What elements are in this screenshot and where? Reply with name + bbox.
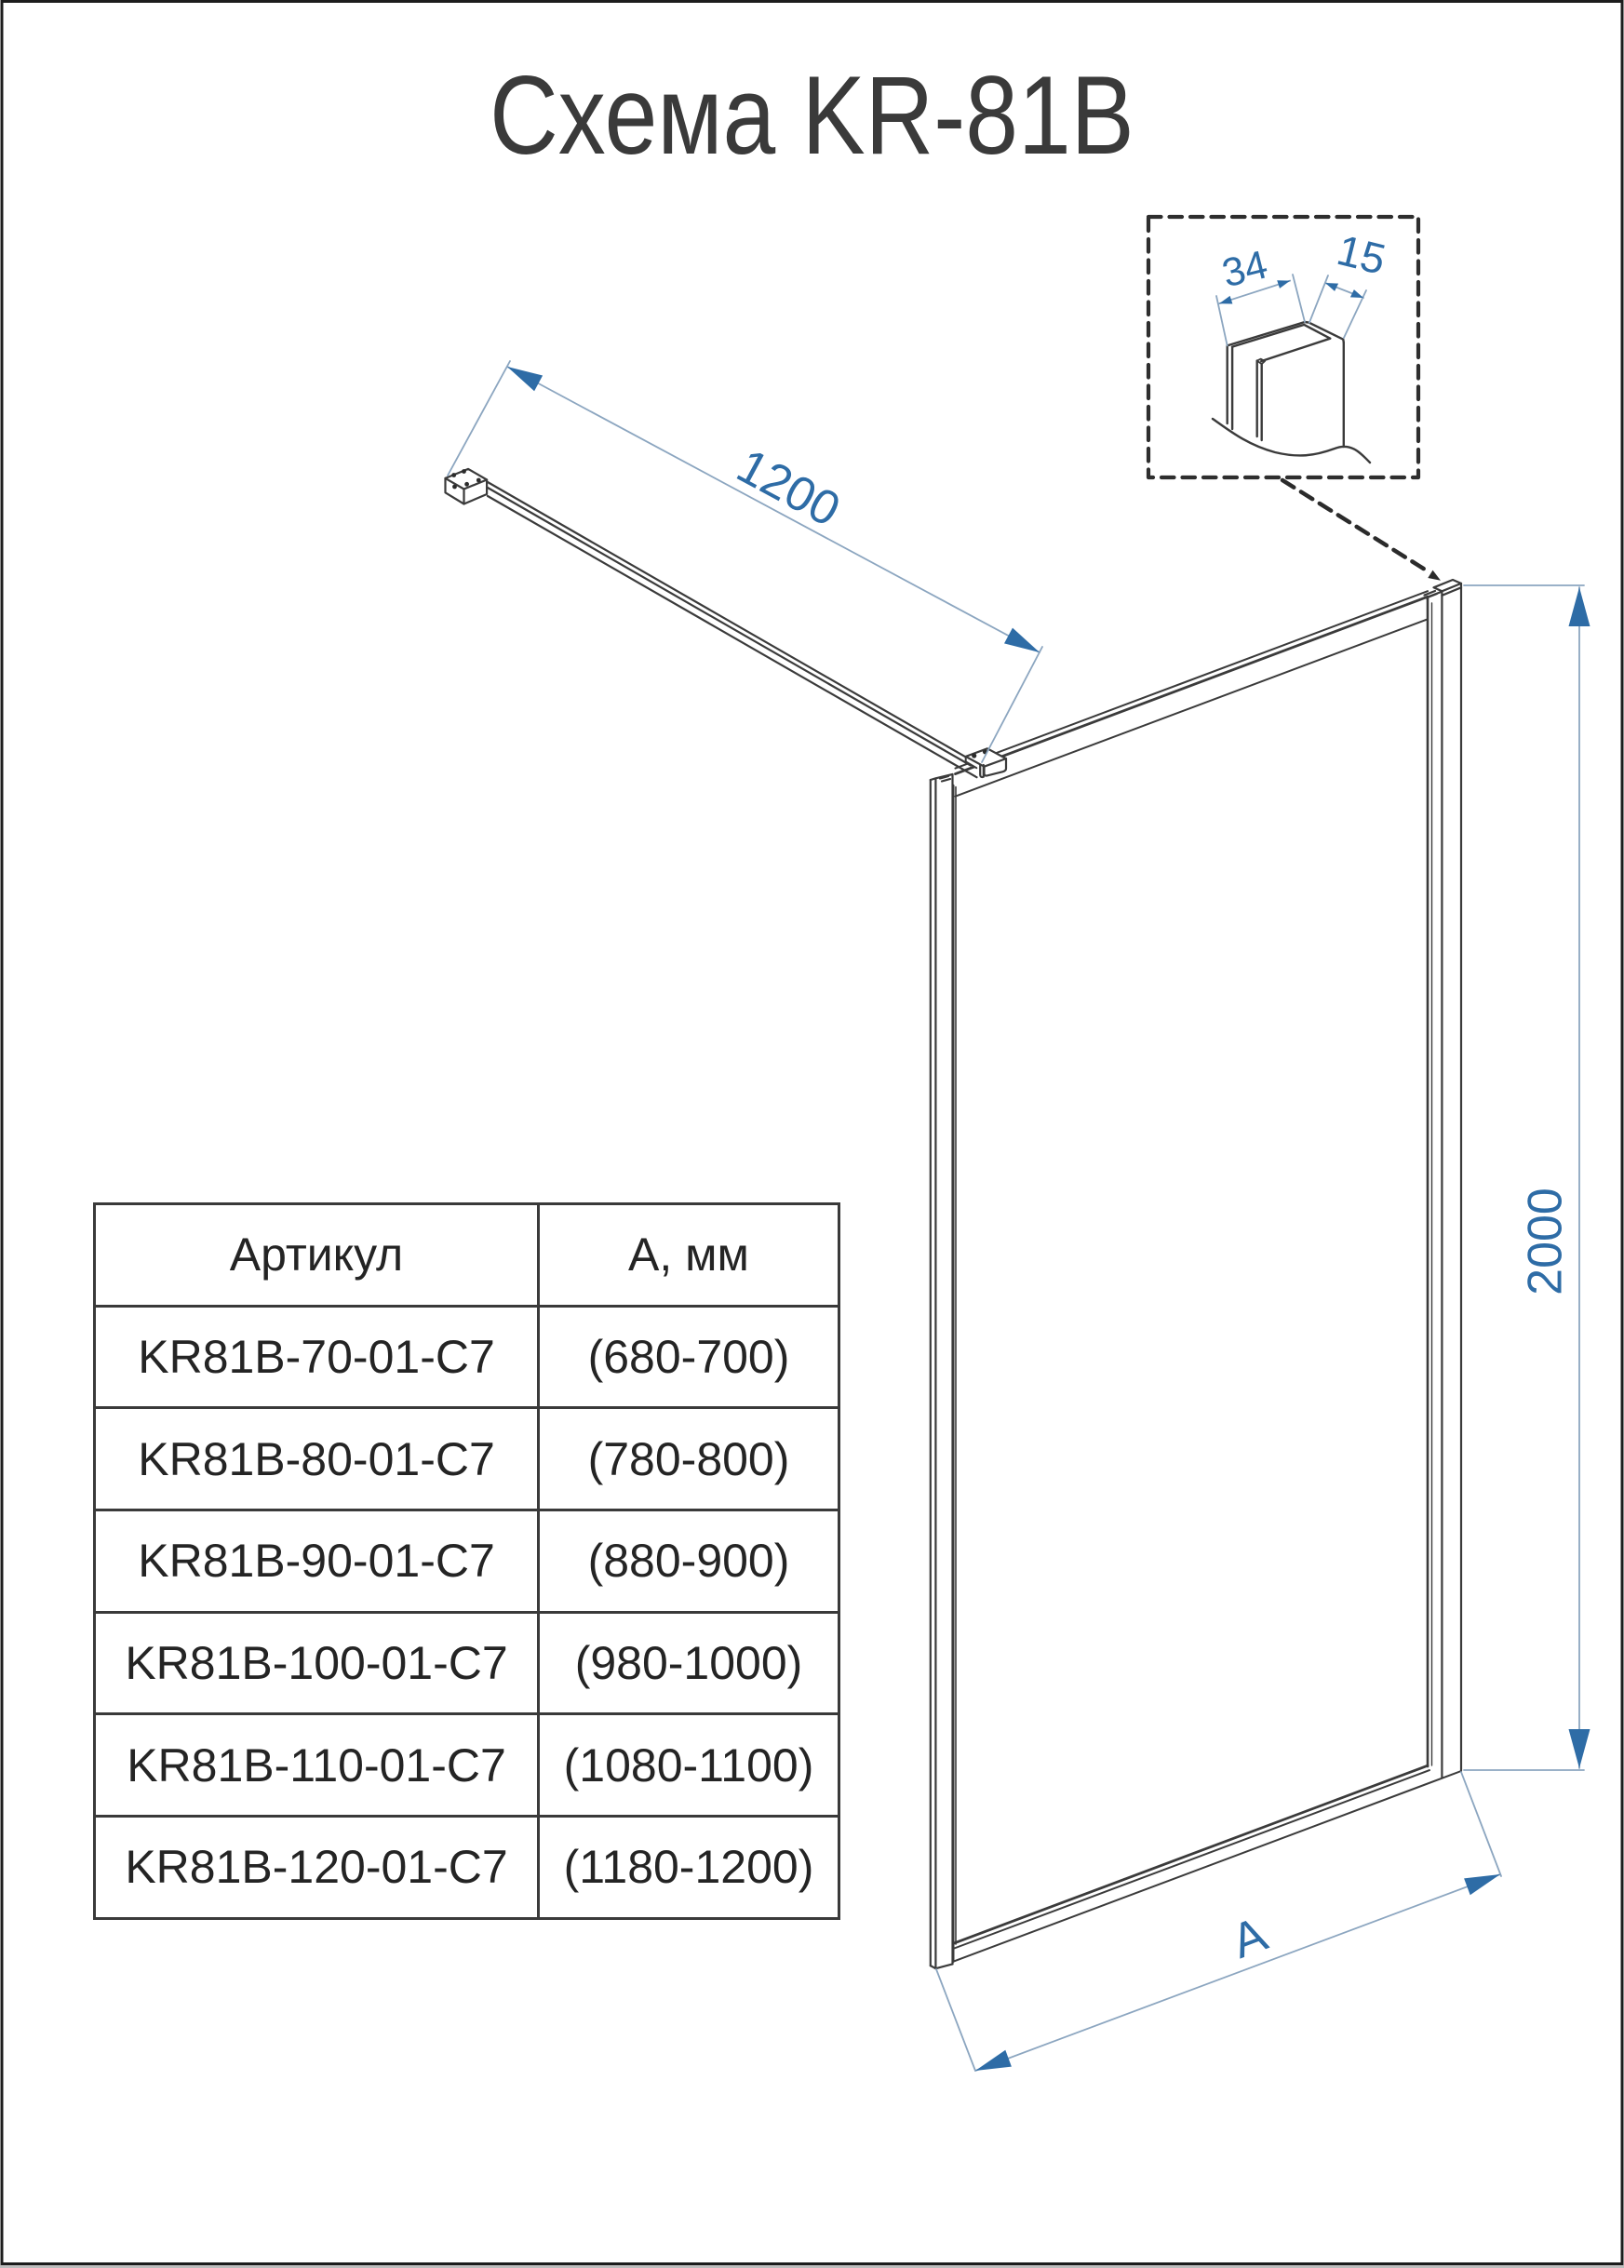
svg-text:2000: 2000 (1519, 1188, 1573, 1295)
svg-text:34: 34 (1218, 242, 1272, 296)
svg-text:A: A (1225, 1907, 1274, 1969)
svg-text:1200: 1200 (728, 439, 848, 538)
svg-text:15: 15 (1333, 225, 1390, 284)
